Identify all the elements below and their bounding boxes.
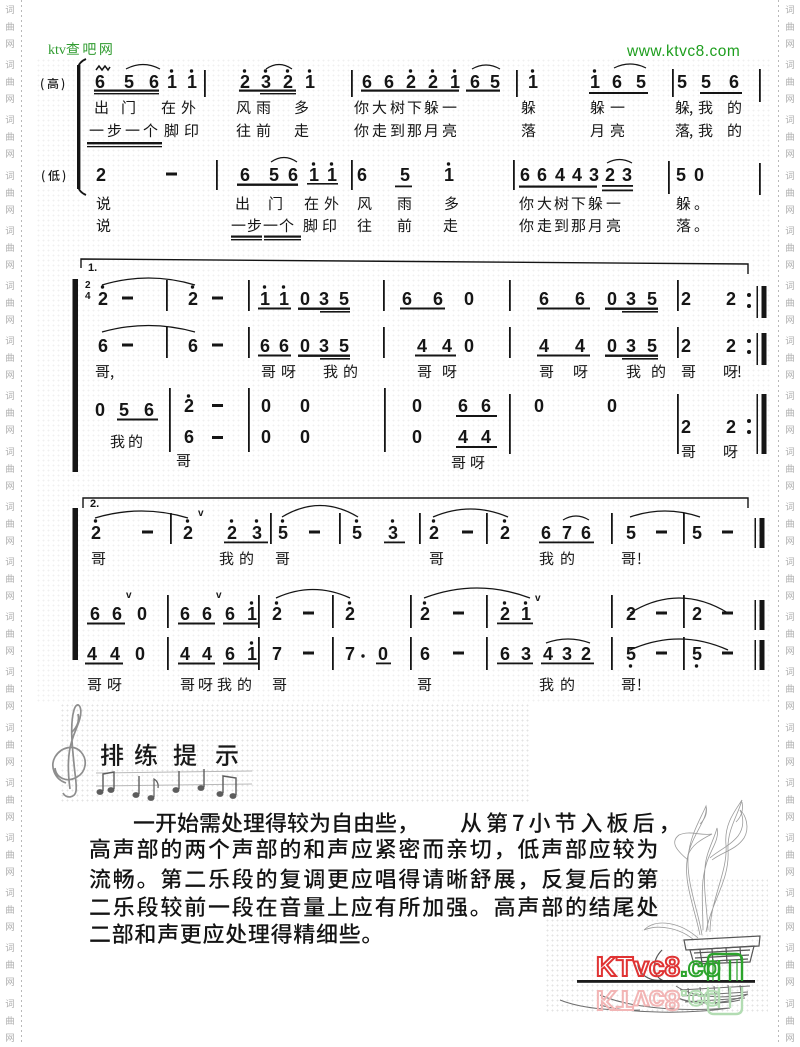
svg-text:440: 440 xyxy=(87,644,145,664)
svg-text:11035: 11035 xyxy=(260,289,349,309)
svg-text:哥呀: 哥呀 xyxy=(539,361,588,382)
svg-text:660: 660 xyxy=(402,289,474,309)
svg-text:63432: 63432 xyxy=(500,644,591,664)
svg-text:哥: 哥 xyxy=(91,548,106,569)
svg-text:3: 3 xyxy=(388,523,398,543)
svg-text:66: 66 xyxy=(458,396,491,416)
svg-text:落,我的: 落,我的 xyxy=(675,120,742,141)
svg-text:6: 6 xyxy=(98,336,108,356)
svg-text:5: 5 xyxy=(278,523,288,543)
svg-text:躲一: 躲一 xyxy=(590,97,625,118)
svg-text:哥呀: 哥呀 xyxy=(261,361,296,382)
svg-text:65611: 65611 xyxy=(95,72,197,92)
svg-text:7: 7 xyxy=(272,644,282,664)
svg-text:5: 5 xyxy=(626,523,636,543)
svg-text:66035: 66035 xyxy=(260,336,349,356)
svg-text:5: 5 xyxy=(352,523,362,543)
svg-text:哥,: 哥, xyxy=(95,361,114,382)
svg-text:哥!: 哥! xyxy=(621,548,642,569)
svg-text:00: 00 xyxy=(534,396,617,416)
svg-text:往前走: 往前走 xyxy=(357,215,458,236)
svg-text:2: 2 xyxy=(692,604,702,624)
svg-text:056: 056 xyxy=(95,400,154,420)
svg-text:v: v xyxy=(198,508,204,519)
svg-text:6: 6 xyxy=(184,427,194,447)
svg-text:5: 5 xyxy=(692,644,702,664)
svg-text:556: 556 xyxy=(677,72,739,92)
svg-text:一步一个脚印: 一步一个脚印 xyxy=(231,215,337,236)
svg-text:165: 165 xyxy=(590,72,646,92)
svg-text:6: 6 xyxy=(188,336,198,356)
svg-text:2: 2 xyxy=(188,289,198,309)
svg-text:23: 23 xyxy=(227,523,262,543)
svg-text:2: 2 xyxy=(96,165,106,185)
svg-text:说: 说 xyxy=(96,215,111,236)
svg-text:出门在外: 出门在外 xyxy=(235,193,339,214)
svg-text:2: 2 xyxy=(85,280,91,291)
svg-text:0: 0 xyxy=(378,644,388,664)
svg-text:2: 2 xyxy=(272,604,282,624)
svg-text:22: 22 xyxy=(681,336,736,356)
svg-text:44: 44 xyxy=(458,427,491,447)
svg-text:2: 2 xyxy=(345,604,355,624)
svg-text:哥: 哥 xyxy=(429,548,444,569)
svg-text:7: 7 xyxy=(345,644,355,664)
svg-text:2: 2 xyxy=(98,289,108,309)
svg-text:6644323: 6644323 xyxy=(520,165,632,185)
svg-text:21: 21 xyxy=(500,604,531,624)
svg-text:00: 00 xyxy=(261,396,310,416)
svg-text:66: 66 xyxy=(90,604,122,624)
svg-text:440: 440 xyxy=(417,336,474,356)
svg-text:5: 5 xyxy=(692,523,702,543)
svg-text:5: 5 xyxy=(626,644,636,664)
svg-text:哥呀: 哥呀 xyxy=(417,361,457,382)
svg-text:我的: 我的 xyxy=(539,548,575,569)
svg-text:0: 0 xyxy=(137,604,147,624)
svg-text:00: 00 xyxy=(261,427,310,447)
svg-text:月亮: 月亮 xyxy=(590,120,625,141)
svg-text:2: 2 xyxy=(420,604,430,624)
svg-text:我的: 我的 xyxy=(323,361,358,382)
svg-text:哥: 哥 xyxy=(417,674,432,695)
svg-text:651: 651 xyxy=(357,165,454,185)
svg-text:66035: 66035 xyxy=(539,289,657,309)
svg-text:排练提示: 排练提示 xyxy=(100,736,239,771)
svg-text:2: 2 xyxy=(500,523,510,543)
svg-text:躲。: 躲。 xyxy=(676,193,709,214)
svg-text:躲,我的: 躲,我的 xyxy=(675,97,742,118)
svg-text:1: 1 xyxy=(528,72,538,92)
svg-text:676: 676 xyxy=(541,523,591,543)
svg-text:2: 2 xyxy=(626,604,636,624)
svg-text:2: 2 xyxy=(91,523,101,543)
svg-text:6622165: 6622165 xyxy=(362,72,500,92)
svg-text:哥呀: 哥呀 xyxy=(681,441,738,462)
svg-text:4: 4 xyxy=(85,291,91,302)
svg-text:v: v xyxy=(126,590,132,601)
svg-text:v: v xyxy=(216,590,222,601)
svg-text:22: 22 xyxy=(681,417,736,437)
svg-text:你大树下躲一: 你大树下躲一 xyxy=(519,193,621,214)
svg-text:(高): (高) xyxy=(40,75,65,92)
svg-text:你走到那月亮: 你走到那月亮 xyxy=(519,215,621,236)
svg-text:65611: 65611 xyxy=(240,165,337,185)
svg-text:6: 6 xyxy=(420,644,430,664)
svg-text:4461: 4461 xyxy=(180,644,257,664)
svg-text:0: 0 xyxy=(412,396,422,416)
svg-text:2: 2 xyxy=(429,523,439,543)
svg-text:哥呀: 哥呀 xyxy=(451,452,485,473)
svg-text:哥呀我的: 哥呀我的 xyxy=(180,674,252,695)
svg-text:我的哥: 我的哥 xyxy=(219,548,290,569)
svg-text:哥: 哥 xyxy=(176,450,191,471)
svg-text:1.: 1. xyxy=(88,262,97,274)
svg-text:50: 50 xyxy=(676,165,704,185)
svg-text:v: v xyxy=(535,593,541,604)
svg-text:我的: 我的 xyxy=(110,431,143,452)
svg-text:2321: 2321 xyxy=(240,72,315,92)
svg-text:2: 2 xyxy=(183,523,193,543)
svg-text:22: 22 xyxy=(681,289,736,309)
svg-text:我的: 我的 xyxy=(626,361,666,382)
svg-text:44035: 44035 xyxy=(539,336,657,356)
svg-text:落。: 落。 xyxy=(676,215,709,236)
svg-text:哥呀: 哥呀 xyxy=(87,674,122,695)
svg-text:风雨多: 风雨多 xyxy=(357,193,459,214)
svg-text:哥呀!: 哥呀! xyxy=(681,361,742,382)
svg-text:说: 说 xyxy=(96,193,111,214)
svg-text:0: 0 xyxy=(412,427,422,447)
svg-text:(低): (低) xyxy=(41,167,66,184)
svg-text:61: 61 xyxy=(225,604,257,624)
svg-text:躲: 躲 xyxy=(521,97,536,118)
svg-text:我的: 我的 xyxy=(539,674,575,695)
svg-text:66: 66 xyxy=(180,604,212,624)
svg-text:出门在外风雨多你大树下躲一: 出门在外风雨多你大树下躲一 xyxy=(94,97,457,118)
svg-text:2: 2 xyxy=(184,396,194,416)
svg-text:哥: 哥 xyxy=(272,674,287,695)
svg-text:2.: 2. xyxy=(90,498,99,510)
svg-text:哥!: 哥! xyxy=(621,674,642,695)
svg-text:落: 落 xyxy=(521,120,536,141)
svg-text:一步一个脚印往前走你走到那月亮: 一步一个脚印往前走你走到那月亮 xyxy=(89,120,457,141)
